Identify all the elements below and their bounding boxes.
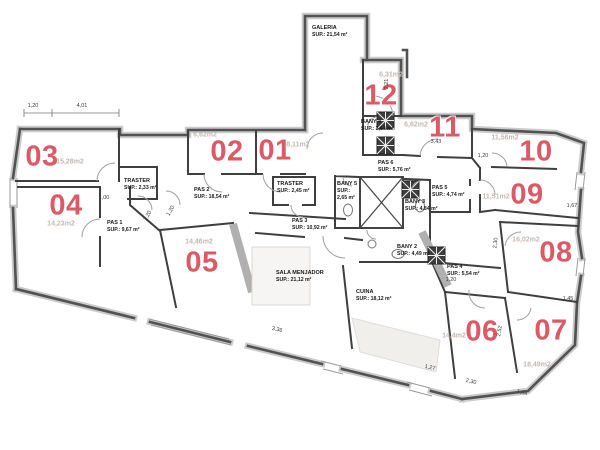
label-traster-1: TRASTER SUP.: 2,33 m² [124,178,156,192]
room-02-area: 6,62m2 [193,132,217,139]
space-sup: SUP.: 9,67 m² [107,227,139,234]
space-name: GALERIA [312,25,347,32]
room-05-number: 05 [185,247,218,280]
room-04-area: 14,23m2 [47,221,75,228]
label-pas-1: PAS 1 SUP.: 9,67 m² [107,220,139,234]
room-09-area: 11,51m2 [482,194,509,201]
room-05-area: 14,46m2 [185,239,213,246]
dimension: 2,30 [492,237,499,248]
room-02-number: 02 [210,136,243,169]
room-11-area: 6,62m2 [404,122,428,129]
space-name: TRASTER [277,181,309,188]
space-name: BANY 3 [405,199,437,206]
space-sup: SUP.: 3,64 m² [361,126,393,133]
label-bany-2: BANY 2 SUP.: 4,49 m² [397,244,429,258]
room-03-number: 03 [25,141,58,174]
space-sup: SUP.: 2,33 m² [124,185,156,192]
label-sala-menjador: SALA MENJADOR SUP.: 21,12 m² [276,270,324,284]
dimension: 2,21 [384,79,390,90]
room-03-area: 15,28m2 [56,159,84,166]
space-name: PAS 2 [194,187,229,194]
space-name: PAS 6 [378,160,410,167]
room-01-area: 8,11m2 [286,142,309,149]
label-bany-5: BANY 5 SUP.: 2,65 m² [337,181,361,202]
space-name: PAS 3 [292,218,327,225]
room-04-number: 04 [49,190,82,223]
space-sup: SUP.: 2,65 m² [337,188,361,202]
space-name: CUINA [356,289,391,296]
dimension: 4,01 [77,103,88,109]
dimension: 1,67 [567,203,578,209]
space-name: BANY 4 [361,119,393,126]
elevator-shaft-symbol [360,177,403,228]
space-sup: SUP.: 18,54 m² [194,194,229,201]
room-10-area: 11,56m2 [491,135,518,142]
room-09-number: 09 [510,179,543,212]
room-12-area: 6,31m2 [379,72,403,79]
label-pas-4: PAS 4 SUP.: 5,54 m² [447,264,479,278]
space-name: BANY 5 [337,181,361,188]
room-06-area: 14,4m2 [442,333,466,340]
space-sup: SUP.: 4,84 m² [405,206,437,213]
room-10-number: 10 [519,136,552,169]
space-sup: SUP.: 21,12 m² [276,277,324,284]
space-name: SALA MENJADOR [276,270,324,277]
room-07-number: 07 [534,315,567,348]
label-pas-3: PAS 3 SUP.: 10,92 m² [292,218,327,232]
space-sup: SUP.: 4,49 m² [397,251,429,258]
room-08-number: 08 [539,237,572,270]
label-bany-4: BANY 4 SUP.: 3,64 m² [361,119,393,133]
room-08-area: 16,02m2 [512,237,540,244]
floor-plan: 01 02 03 04 05 06 07 08 09 10 11 12 8,11… [0,0,600,450]
space-name: PAS 5 [432,185,464,192]
dimension: 1,20 [446,277,457,283]
label-pas-6: PAS 6 SUP.: 5,76 m² [378,160,410,174]
label-pas-5: PAS 5 SUP.: 4,74 m² [432,185,464,199]
label-pas-2: PAS 2 SUP.: 18,54 m² [194,187,229,201]
space-sup: SUP.: 18,12 m² [356,296,391,303]
space-name: TRASTER [124,178,156,185]
dimension: 1,45 [563,296,574,302]
space-sup: SUP.: 2,45 m² [277,188,309,195]
room-07-area: 18,49m2 [523,362,551,369]
dimension: 1,00 [99,195,110,201]
room-01-number: 01 [258,135,291,168]
label-traster-2: TRASTER SUP.: 2,45 m² [277,181,309,195]
space-sup: SUP.: 21,54 m² [312,32,347,39]
label-galeria: GALERIA SUP.: 21,54 m² [312,25,347,39]
space-sup: SUP.: 10,92 m² [292,225,327,232]
room-12-number: 12 [364,80,397,113]
space-name: BANY 2 [397,244,429,251]
dimension: 1,20 [28,103,39,109]
space-sup: SUP.: 4,74 m² [432,192,464,199]
dimension: 3,43 [431,139,442,145]
space-name: PAS 4 [447,264,479,271]
dimension: 1,20 [478,153,489,159]
space-name: PAS 1 [107,220,139,227]
label-bany-3: BANY 3 SUP.: 4,84 m² [405,199,437,213]
room-06-number: 06 [465,316,498,349]
label-cuina: CUINA SUP.: 18,12 m² [356,289,391,303]
space-sup: SUP.: 5,76 m² [378,167,410,174]
